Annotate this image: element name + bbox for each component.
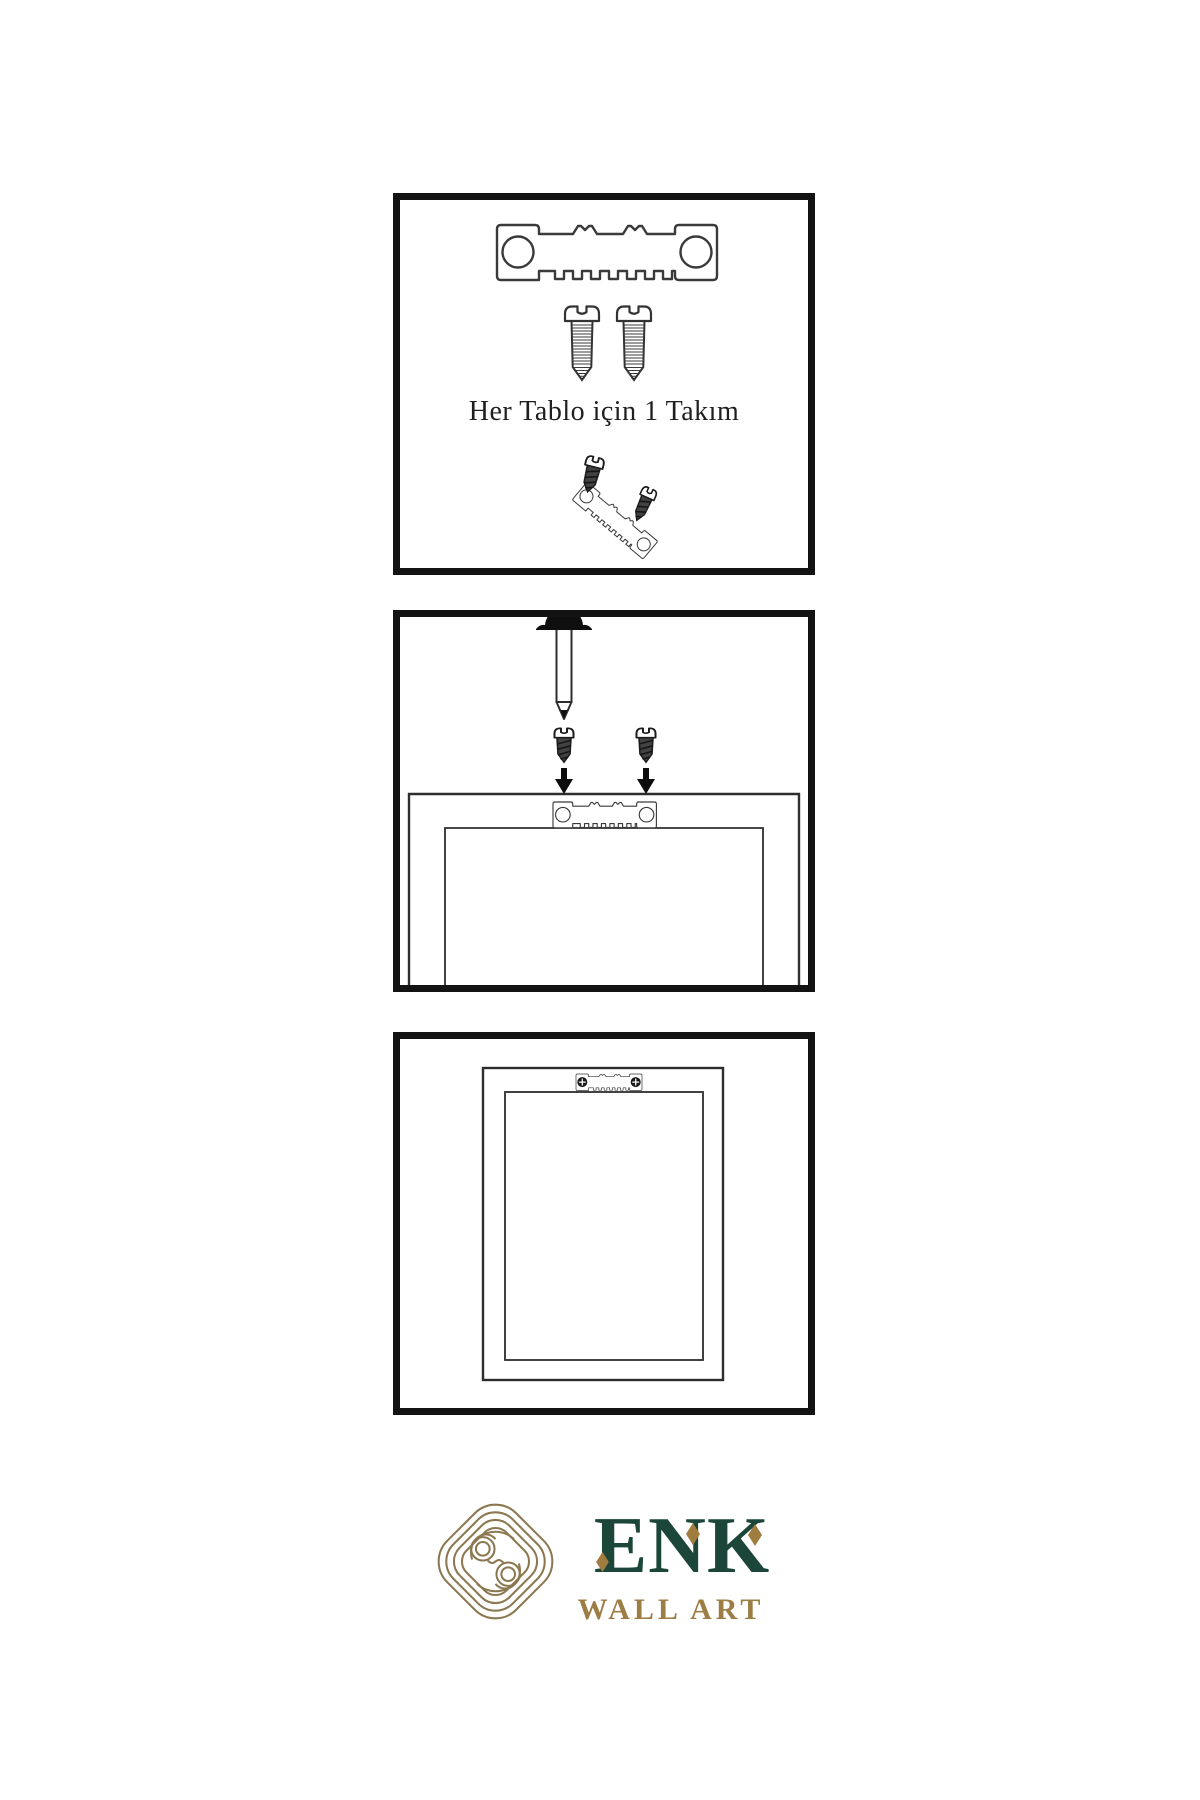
down-arrow-icon — [555, 768, 573, 794]
phillips-screw-icon — [631, 1077, 641, 1087]
diamond-icon — [686, 1523, 700, 1545]
phillips-screw-icon — [577, 1077, 587, 1087]
screw-icon — [637, 728, 656, 762]
hanging-drawing — [400, 1039, 808, 1408]
hardware-kit-drawing — [400, 200, 808, 568]
instruction-sheet: Her Tablo için 1 Takım — [0, 0, 1200, 1800]
panel-hanging — [393, 1032, 815, 1415]
enk-knot-icon — [437, 1500, 554, 1623]
screw-icon — [630, 486, 658, 524]
brand-name: ENK — [566, 1506, 776, 1586]
down-arrow-icon — [637, 768, 655, 794]
wall-nail-icon — [536, 617, 592, 719]
diamond-icon — [748, 1524, 762, 1546]
panel-hardware-kit: Her Tablo için 1 Takım — [393, 193, 815, 575]
logo-wordmark: ENK WALL ART — [566, 1506, 776, 1627]
screw-icon — [555, 728, 574, 762]
sawtooth-hanger-icon — [497, 225, 717, 280]
diamond-icon — [596, 1552, 609, 1572]
frame-front-icon — [483, 1068, 723, 1380]
sawtooth-hanger-icon — [553, 802, 656, 828]
panel-mounting — [393, 610, 815, 992]
kit-caption: Her Tablo için 1 Takım — [400, 396, 808, 428]
screw-icon — [617, 307, 651, 381]
mounting-drawing — [400, 617, 808, 985]
brand-subtitle: WALL ART — [566, 1593, 776, 1627]
screw-icon — [565, 307, 599, 381]
